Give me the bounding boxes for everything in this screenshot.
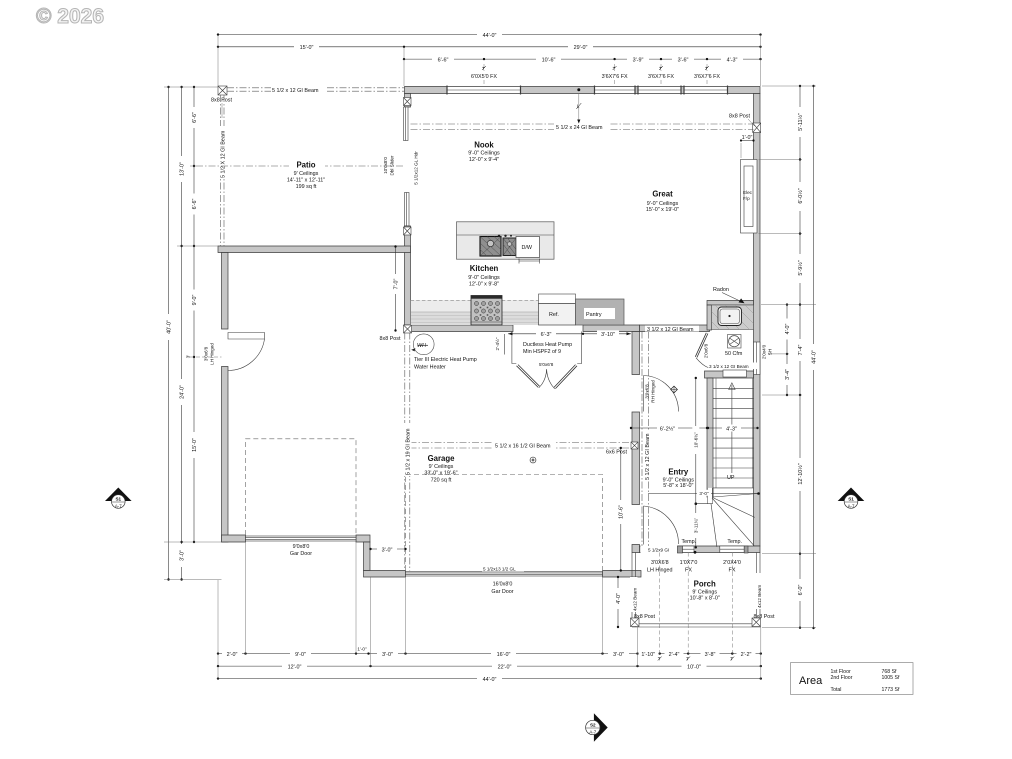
svg-text:2nd Floor: 2nd Floor (831, 675, 853, 681)
svg-text:A-7: A-7 (115, 503, 122, 508)
svg-text:10'0x8'0: 10'0x8'0 (383, 157, 388, 174)
svg-text:15'-0": 15'-0" (300, 45, 314, 51)
svg-text:2'-2": 2'-2" (741, 652, 752, 658)
svg-text:22'-0": 22'-0" (498, 664, 512, 670)
svg-text:L: L (577, 104, 580, 109)
svg-text:5'0x6'8: 5'0x6'8 (539, 362, 554, 367)
svg-text:6'0X5'0 FX: 6'0X5'0 FX (471, 74, 497, 80)
svg-text:2'-0": 2'-0" (227, 652, 238, 658)
svg-text:40'-0": 40'-0" (166, 320, 172, 334)
svg-text:14'-11" x 12'-11": 14'-11" x 12'-11" (287, 178, 325, 184)
svg-text:768 Sf: 768 Sf (882, 669, 898, 675)
svg-text:F/p: F/p (743, 196, 750, 201)
svg-text:7'-4": 7'-4" (798, 345, 804, 356)
svg-text:5 1/2x13 1/2 GL: 5 1/2x13 1/2 GL (483, 567, 516, 572)
svg-text:9'-0": 9'-0" (192, 295, 198, 306)
svg-text:5 1/2 x 16 1/2 GI Beam: 5 1/2 x 16 1/2 GI Beam (495, 444, 551, 450)
svg-text:RH Hinged: RH Hinged (651, 380, 656, 403)
svg-text:1'-10": 1'-10" (641, 652, 655, 658)
svg-text:Area: Area (799, 675, 823, 687)
svg-text:6x6 Post: 6x6 Post (606, 450, 627, 456)
svg-text:1773 Sf: 1773 Sf (882, 687, 900, 693)
svg-text:Gar Door: Gar Door (491, 589, 513, 595)
svg-text:12'-0" x 9'-4": 12'-0" x 9'-4" (469, 157, 499, 163)
svg-text:3'0X6'8: 3'0X6'8 (651, 560, 669, 566)
svg-text:3'-0": 3'-0" (382, 547, 393, 553)
svg-text:3'-0": 3'-0" (699, 491, 709, 496)
svg-text:9'-0" Ceilings: 9'-0" Ceilings (647, 201, 679, 207)
svg-text:9' Ceilings: 9' Ceilings (294, 171, 319, 177)
svg-text:9'-0" Ceilings: 9'-0" Ceilings (468, 151, 500, 157)
svg-text:5 1/2x9 GI: 5 1/2x9 GI (648, 547, 669, 552)
svg-text:Ductless Heat Pump: Ductless Heat Pump (523, 342, 572, 348)
svg-text:5 1/2 X 12 GI Beam: 5 1/2 X 12 GI Beam (221, 130, 227, 178)
svg-text:10'-6": 10'-6" (542, 57, 556, 63)
svg-text:1st Floor: 1st Floor (831, 669, 851, 675)
svg-text:10'-0": 10'-0" (687, 664, 701, 670)
svg-text:Gar Door: Gar Door (290, 551, 312, 557)
svg-text:3 1/2 x 12 GI Beam: 3 1/2 x 12 GI Beam (647, 327, 694, 333)
svg-text:10'-6": 10'-6" (619, 505, 625, 519)
svg-text:Dbl Slider: Dbl Slider (390, 155, 395, 175)
svg-text:2'-4": 2'-4" (669, 652, 680, 658)
svg-text:44'-0": 44'-0" (483, 33, 497, 39)
svg-text:5 1/2 x 19 GI Beam: 5 1/2 x 19 GI Beam (406, 428, 412, 475)
svg-text:4'-3": 4'-3" (726, 426, 737, 432)
svg-text:6'-0": 6'-0" (798, 585, 804, 596)
svg-text:33'-0" x 19'-6": 33'-0" x 19'-6" (424, 471, 457, 477)
svg-text:29'-0": 29'-0" (574, 45, 588, 51)
svg-text:5'-11½": 5'-11½" (797, 113, 804, 131)
svg-text:D/W: D/W (522, 245, 533, 251)
svg-text:2'0x6'8: 2'0x6'8 (704, 343, 709, 358)
svg-text:4'-0": 4'-0" (616, 593, 622, 604)
svg-text:A-7: A-7 (589, 729, 596, 734)
svg-text:3'0x6'8: 3'0x6'8 (645, 384, 650, 399)
svg-text:8x8 Post: 8x8 Post (754, 614, 775, 620)
svg-text:Elec: Elec (743, 190, 753, 195)
svg-text:5'-8" x 18'-0": 5'-8" x 18'-0" (663, 483, 693, 489)
svg-text:Great: Great (652, 190, 673, 199)
svg-text:Temp.: Temp. (681, 539, 696, 545)
svg-text:Total: Total (831, 687, 842, 693)
svg-text:Pantry: Pantry (586, 312, 602, 318)
svg-text:Kitchen: Kitchen (470, 264, 499, 273)
svg-text:5 1/2 x 12 GI Beam: 5 1/2 x 12 GI Beam (272, 88, 319, 94)
svg-text:199 sq ft: 199 sq ft (296, 184, 317, 190)
svg-text:Ref.: Ref. (549, 312, 559, 318)
svg-text:6'-6": 6'-6" (192, 112, 198, 123)
svg-text:3'-0": 3'-0" (613, 652, 624, 658)
svg-text:9' Ceilings: 9' Ceilings (429, 464, 454, 470)
svg-text:3'-11¾": 3'-11¾" (694, 518, 699, 534)
svg-text:3'6X7'6 FX: 3'6X7'6 FX (648, 74, 674, 80)
svg-text:3'-6": 3'-6" (678, 57, 689, 63)
svg-text:9'0x8'0: 9'0x8'0 (293, 544, 310, 550)
svg-text:Nook: Nook (474, 141, 494, 150)
svg-text:8x8 Post: 8x8 Post (729, 114, 750, 120)
svg-text:24'-0": 24'-0" (179, 385, 185, 399)
svg-text:1005 Sf: 1005 Sf (882, 675, 900, 681)
svg-text:Entry: Entry (668, 467, 689, 476)
svg-text:50 Cfm: 50 Cfm (725, 351, 743, 357)
svg-text:15'-0" x 19'-0": 15'-0" x 19'-0" (646, 207, 679, 213)
svg-text:2'-4½": 2'-4½" (494, 337, 500, 350)
svg-text:Water Heater: Water Heater (414, 365, 446, 371)
svg-text:SH: SH (768, 349, 773, 355)
svg-text:3'6X7'6 FX: 3'6X7'6 FX (602, 74, 628, 80)
svg-text:16'-0": 16'-0" (497, 652, 511, 658)
svg-text:4x12 Beam: 4x12 Beam (632, 588, 637, 611)
svg-text:1'-0": 1'-0" (357, 647, 367, 652)
svg-text:13'-0": 13'-0" (179, 162, 185, 176)
svg-text:5 1/2 x 12 GI Beam: 5 1/2 x 12 GI Beam (645, 433, 651, 480)
svg-text:S2: S2 (590, 723, 596, 728)
svg-text:10'-6¾": 10'-6¾" (694, 432, 699, 448)
svg-text:12'-10½": 12'-10½" (797, 463, 804, 484)
svg-text:6'-2½": 6'-2½" (660, 425, 675, 432)
svg-text:2'0X4'0: 2'0X4'0 (723, 560, 741, 566)
svg-text:8x8 Post: 8x8 Post (380, 336, 401, 342)
svg-text:8x8 Post: 8x8 Post (211, 98, 232, 104)
svg-text:5'-9½": 5'-9½" (797, 260, 804, 275)
svg-text:16'0x8'0: 16'0x8'0 (493, 581, 513, 587)
svg-text:3'-4": 3'-4" (785, 369, 791, 380)
svg-text:3 1/2 x 12 GI Beam: 3 1/2 x 12 GI Beam (709, 364, 749, 369)
svg-text:Min HSPF2 of 9: Min HSPF2 of 9 (523, 349, 561, 355)
svg-text:10'-8" x 8'-0": 10'-8" x 8'-0" (690, 596, 720, 602)
svg-text:Porch: Porch (694, 580, 716, 589)
svg-text:720 sq ft: 720 sq ft (431, 478, 452, 484)
svg-text:12'-0": 12'-0" (288, 664, 302, 670)
svg-text:5 1/2x12 GL Hdr: 5 1/2x12 GL Hdr (414, 151, 419, 185)
svg-text:1'0X7'0: 1'0X7'0 (680, 560, 698, 566)
svg-text:Tier III Electric Heat Pump: Tier III Electric Heat Pump (414, 357, 477, 363)
svg-text:2'0x4'0: 2'0x4'0 (762, 344, 767, 359)
svg-text:6'-0½": 6'-0½" (797, 188, 804, 203)
svg-text:3'-9": 3'-9" (633, 57, 644, 63)
svg-text:7'-0": 7'-0" (393, 279, 399, 290)
svg-text:A-7: A-7 (848, 503, 855, 508)
svg-text:3'-8": 3'-8" (705, 652, 716, 658)
svg-text:44'-0": 44'-0" (811, 350, 817, 364)
svg-text:1'-0": 1'-0" (742, 135, 753, 141)
svg-text:4'-0": 4'-0" (785, 324, 791, 335)
svg-text:Temp.: Temp. (727, 539, 742, 545)
svg-text:S1: S1 (848, 497, 854, 502)
svg-text:9'-0": 9'-0" (295, 652, 306, 658)
svg-text:FX: FX (685, 568, 692, 574)
svg-text:3'6X7'6 FX: 3'6X7'6 FX (694, 74, 720, 80)
svg-text:Radon: Radon (713, 287, 729, 293)
svg-text:9'-0" Ceilings: 9'-0" Ceilings (468, 275, 500, 281)
svg-text:6'-6": 6'-6" (438, 57, 449, 63)
svg-text:6'-6": 6'-6" (192, 199, 198, 210)
svg-text:FX: FX (729, 568, 736, 574)
svg-text:3': 3' (186, 355, 191, 359)
svg-text:15'-0": 15'-0" (192, 438, 198, 452)
svg-text:3'-0": 3'-0" (179, 550, 185, 561)
svg-text:LH Hinged: LH Hinged (210, 343, 215, 365)
svg-text:LH Hinged: LH Hinged (647, 568, 672, 574)
svg-text:5 1/2 x 24 GI Beam: 5 1/2 x 24 GI Beam (556, 125, 603, 131)
svg-text:© 2026: © 2026 (36, 5, 104, 28)
svg-text:12'-0" x 9'-8": 12'-0" x 9'-8" (469, 282, 499, 288)
svg-text:4x12 Beam: 4x12 Beam (757, 585, 762, 608)
svg-text:44'-0": 44'-0" (483, 677, 497, 683)
svg-text:8x8 Post: 8x8 Post (634, 614, 655, 620)
svg-text:Patio: Patio (296, 161, 315, 170)
svg-text:Garage: Garage (428, 454, 456, 463)
svg-text:UP: UP (727, 475, 735, 481)
svg-text:3'-0": 3'-0" (382, 652, 393, 658)
svg-text:S1: S1 (115, 497, 121, 502)
svg-text:6'-3": 6'-3" (541, 332, 552, 338)
svg-text:4'-3": 4'-3" (727, 57, 738, 63)
svg-text:WH: WH (417, 343, 426, 349)
svg-text:3'0x6'8: 3'0x6'8 (204, 346, 209, 361)
svg-text:3'-10": 3'-10" (601, 332, 615, 338)
